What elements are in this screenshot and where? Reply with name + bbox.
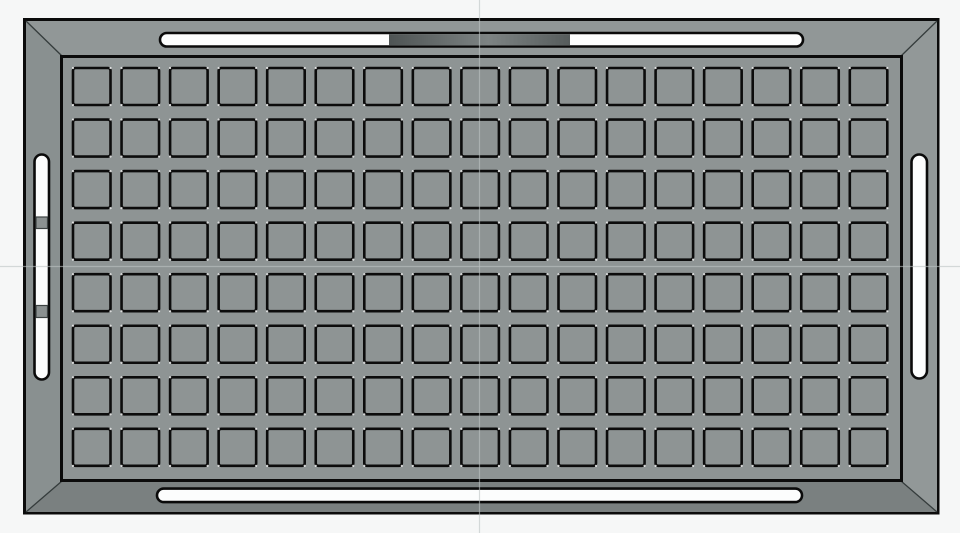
pocket-corner-highlight [838,170,840,172]
pocket-corner-highlight [692,104,694,106]
pocket-corner-highlight [692,67,694,69]
pocket-corner-highlight [120,170,122,172]
pocket-corner-highlight [120,259,122,261]
pocket-corner-highlight [595,222,597,224]
pocket-cell [73,171,111,208]
pocket-corner-highlight [546,376,548,378]
pocket-corner-highlight [72,259,74,261]
pocket-cell [73,223,111,260]
pocket-corner-highlight [412,67,414,69]
pocket-corner-highlight [109,465,111,467]
pocket-corner-highlight [546,118,548,120]
pocket-corner-highlight [218,413,220,415]
pocket-corner-highlight [509,104,511,106]
pocket-cell [753,274,791,311]
pocket-corner-highlight [72,207,74,209]
pocket-corner-highlight [655,428,657,430]
pocket-corner-highlight [363,67,365,69]
pocket-cell [850,223,888,260]
pocket-corner-highlight [789,118,791,120]
pocket-corner-highlight [207,428,209,430]
pocket-corner-highlight [266,104,268,106]
pocket-corner-highlight [886,67,888,69]
pocket-cell [122,68,160,105]
pocket-corner-highlight [498,310,500,312]
pocket-corner-highlight [352,170,354,172]
pocket-corner-highlight [498,118,500,120]
pocket-corner-highlight [546,428,548,430]
pocket-corner-highlight [218,325,220,327]
pocket-corner-highlight [218,310,220,312]
pocket-corner-highlight [849,155,851,157]
pocket-corner-highlight [546,362,548,364]
pocket-corner-highlight [218,465,220,467]
pocket-corner-highlight [120,310,122,312]
pocket-corner-highlight [72,310,74,312]
pocket-corner-highlight [158,362,160,364]
pocket-corner-highlight [741,170,743,172]
pocket-cell [607,274,645,311]
pocket-corner-highlight [643,376,645,378]
pocket-corner-highlight [692,325,694,327]
pocket-cell [801,171,839,208]
pocket-corner-highlight [546,155,548,157]
pocket-corner-highlight [412,273,414,275]
pocket-corner-highlight [255,207,257,209]
pocket-cell [73,274,111,311]
pocket-corner-highlight [752,325,754,327]
pocket-corner-highlight [849,465,851,467]
pocket-cell [656,326,694,363]
pocket-corner-highlight [800,155,802,157]
pocket-corner-highlight [595,273,597,275]
pocket-corner-highlight [169,273,171,275]
pocket-cell [510,377,548,414]
pocket-cell [656,68,694,105]
pocket-corner-highlight [789,273,791,275]
pocket-corner-highlight [169,259,171,261]
pocket-corner-highlight [255,222,257,224]
pocket-corner-highlight [255,428,257,430]
pocket-corner-highlight [498,465,500,467]
pocket-corner-highlight [606,170,608,172]
pocket-cell [219,377,257,414]
pocket-corner-highlight [304,273,306,275]
pocket-corner-highlight [741,155,743,157]
pocket-corner-highlight [255,376,257,378]
pocket-corner-highlight [304,104,306,106]
pocket-corner-highlight [315,67,317,69]
pocket-corner-highlight [752,104,754,106]
pocket-corner-highlight [800,259,802,261]
pocket-corner-highlight [109,310,111,312]
pocket-cell [559,68,597,105]
pocket-corner-highlight [789,170,791,172]
pocket-corner-highlight [218,170,220,172]
pocket-corner-highlight [838,259,840,261]
pocket-corner-highlight [546,325,548,327]
pocket-corner-highlight [800,465,802,467]
pocket-cell [219,120,257,157]
pocket-corner-highlight [207,207,209,209]
pocket-corner-highlight [109,207,111,209]
pocket-cell [704,377,742,414]
pocket-corner-highlight [207,67,209,69]
pocket-corner-highlight [255,155,257,157]
pocket-corner-highlight [643,104,645,106]
pocket-corner-highlight [109,155,111,157]
pocket-corner-highlight [800,273,802,275]
pocket-corner-highlight [352,273,354,275]
pocket-corner-highlight [72,428,74,430]
pocket-corner-highlight [509,207,511,209]
pocket-corner-highlight [557,310,559,312]
pocket-corner-highlight [72,222,74,224]
pocket-corner-highlight [789,376,791,378]
pocket-corner-highlight [169,465,171,467]
pocket-corner-highlight [304,259,306,261]
pocket-cell [413,223,451,260]
pocket-corner-highlight [120,67,122,69]
pocket-corner-highlight [655,325,657,327]
pocket-corner-highlight [169,170,171,172]
pocket-cell [461,377,499,414]
pocket-corner-highlight [352,259,354,261]
pocket-corner-highlight [849,170,851,172]
pocket-corner-highlight [509,273,511,275]
pocket-corner-highlight [449,376,451,378]
pocket-cell [753,223,791,260]
pocket-corner-highlight [460,465,462,467]
pocket-corner-highlight [207,155,209,157]
pocket-corner-highlight [363,325,365,327]
pocket-corner-highlight [401,67,403,69]
pocket-corner-highlight [460,222,462,224]
pocket-corner-highlight [752,310,754,312]
pocket-corner-highlight [266,273,268,275]
pocket-corner-highlight [109,273,111,275]
pocket-corner-highlight [352,325,354,327]
pocket-corner-highlight [266,67,268,69]
pocket-corner-highlight [703,413,705,415]
pocket-cell [316,120,354,157]
pocket-corner-highlight [449,273,451,275]
pocket-corner-highlight [886,104,888,106]
pocket-corner-highlight [595,428,597,430]
pocket-corner-highlight [741,428,743,430]
pocket-corner-highlight [158,465,160,467]
pocket-corner-highlight [692,222,694,224]
pocket-corner-highlight [498,67,500,69]
pocket-corner-highlight [304,170,306,172]
pocket-cell [607,171,645,208]
pocket-corner-highlight [606,325,608,327]
pocket-corner-highlight [304,155,306,157]
pocket-corner-highlight [595,465,597,467]
pocket-corner-highlight [606,362,608,364]
pocket-corner-highlight [412,428,414,430]
pocket-corner-highlight [401,207,403,209]
pocket-cell [510,223,548,260]
pocket-corner-highlight [449,118,451,120]
pocket-cell [656,377,694,414]
pocket-corner-highlight [886,118,888,120]
pocket-cell [170,274,208,311]
pocket-cell [656,274,694,311]
pocket-corner-highlight [412,376,414,378]
pocket-corner-highlight [655,465,657,467]
pocket-corner-highlight [703,104,705,106]
pocket-corner-highlight [412,259,414,261]
pocket-cell [510,429,548,466]
pocket-corner-highlight [352,413,354,415]
pocket-cell [753,377,791,414]
pocket-corner-highlight [741,465,743,467]
pocket-cell [316,223,354,260]
pocket-corner-highlight [120,362,122,364]
pocket-corner-highlight [703,170,705,172]
pocket-corner-highlight [886,428,888,430]
pocket-corner-highlight [849,325,851,327]
pocket-corner-highlight [546,207,548,209]
pocket-corner-highlight [606,310,608,312]
pocket-corner-highlight [703,428,705,430]
pocket-cell [656,120,694,157]
pocket-corner-highlight [606,207,608,209]
pocket-corner-highlight [460,428,462,430]
pocket-corner-highlight [109,428,111,430]
pocket-corner-highlight [800,362,802,364]
pocket-corner-highlight [412,104,414,106]
pocket-cell [850,68,888,105]
pocket-cell [559,377,597,414]
pocket-cell [73,429,111,466]
pocket-corner-highlight [557,67,559,69]
pocket-corner-highlight [158,155,160,157]
pocket-corner-highlight [109,325,111,327]
pocket-corner-highlight [703,273,705,275]
pocket-cell [510,326,548,363]
pocket-corner-highlight [752,207,754,209]
pocket-corner-highlight [849,222,851,224]
pocket-corner-highlight [557,273,559,275]
pocket-corner-highlight [266,362,268,364]
pocket-corner-highlight [752,155,754,157]
pocket-corner-highlight [255,310,257,312]
pocket-corner-highlight [643,428,645,430]
pocket-cell [364,429,402,466]
pocket-corner-highlight [498,104,500,106]
pocket-cell [267,429,305,466]
pocket-cell [219,326,257,363]
pocket-cell [704,120,742,157]
pocket-cell [267,171,305,208]
pocket-corner-highlight [655,155,657,157]
pocket-corner-highlight [158,428,160,430]
cad-viewport-svg [0,0,960,533]
pocket-corner-highlight [643,465,645,467]
pocket-cell [753,171,791,208]
pocket-corner-highlight [789,413,791,415]
pocket-cell [656,171,694,208]
pocket-corner-highlight [643,259,645,261]
pocket-corner-highlight [643,170,645,172]
pocket-corner-highlight [109,104,111,106]
pocket-corner-highlight [692,465,694,467]
pocket-cell [73,377,111,414]
pocket-corner-highlight [304,67,306,69]
pocket-corner-highlight [218,222,220,224]
pocket-corner-highlight [752,118,754,120]
pocket-corner-highlight [509,362,511,364]
pocket-corner-highlight [266,413,268,415]
pocket-cell [316,326,354,363]
pocket-corner-highlight [838,207,840,209]
pocket-corner-highlight [207,222,209,224]
pocket-corner-highlight [703,155,705,157]
pocket-cell [510,274,548,311]
pocket-corner-highlight [218,362,220,364]
pocket-corner-highlight [498,428,500,430]
pocket-corner-highlight [401,428,403,430]
pocket-corner-highlight [255,325,257,327]
pocket-corner-highlight [449,259,451,261]
pocket-corner-highlight [109,259,111,261]
pocket-corner-highlight [655,259,657,261]
pocket-corner-highlight [849,413,851,415]
pocket-corner-highlight [838,465,840,467]
pocket-cell [170,223,208,260]
pocket-corner-highlight [643,118,645,120]
pocket-corner-highlight [886,170,888,172]
pocket-corner-highlight [158,67,160,69]
pocket-corner-highlight [838,325,840,327]
pocket-corner-highlight [655,413,657,415]
pocket-corner-highlight [72,362,74,364]
pocket-corner-highlight [109,413,111,415]
pocket-cell [559,120,597,157]
pocket-corner-highlight [401,325,403,327]
pocket-corner-highlight [752,413,754,415]
pocket-corner-highlight [849,362,851,364]
pocket-corner-highlight [412,118,414,120]
pocket-corner-highlight [266,207,268,209]
pocket-corner-highlight [557,118,559,120]
pocket-corner-highlight [460,118,462,120]
pocket-corner-highlight [363,104,365,106]
pocket-corner-highlight [401,310,403,312]
pocket-cell [364,377,402,414]
pocket-corner-highlight [363,118,365,120]
pocket-corner-highlight [692,259,694,261]
pocket-corner-highlight [643,273,645,275]
pocket-corner-highlight [606,104,608,106]
pocket-corner-highlight [412,155,414,157]
pocket-corner-highlight [655,273,657,275]
pocket-corner-highlight [363,155,365,157]
pocket-cell [461,68,499,105]
pocket-corner-highlight [460,155,462,157]
pocket-corner-highlight [557,170,559,172]
pocket-corner-highlight [207,362,209,364]
pocket-corner-highlight [401,104,403,106]
pocket-cell [704,429,742,466]
pocket-corner-highlight [789,222,791,224]
pocket-corner-highlight [692,362,694,364]
pocket-corner-highlight [557,413,559,415]
pocket-corner-highlight [460,362,462,364]
pocket-corner-highlight [606,413,608,415]
pocket-corner-highlight [449,67,451,69]
pocket-corner-highlight [401,376,403,378]
pocket-corner-highlight [838,67,840,69]
pocket-corner-highlight [363,170,365,172]
pocket-cell [801,429,839,466]
pocket-corner-highlight [703,67,705,69]
pocket-corner-highlight [838,362,840,364]
pocket-corner-highlight [412,310,414,312]
pocket-corner-highlight [789,104,791,106]
pocket-corner-highlight [266,170,268,172]
pocket-corner-highlight [449,155,451,157]
pocket-corner-highlight [169,207,171,209]
pocket-corner-highlight [169,428,171,430]
slot-left-tab-1 [36,217,48,229]
pocket-cell [704,68,742,105]
pocket-corner-highlight [207,170,209,172]
pocket-cell [413,120,451,157]
pocket-cell [219,223,257,260]
pocket-corner-highlight [800,104,802,106]
pocket-corner-highlight [557,104,559,106]
pocket-cell [413,326,451,363]
pocket-corner-highlight [412,362,414,364]
pocket-cell [510,68,548,105]
pocket-corner-highlight [304,413,306,415]
pocket-corner-highlight [255,362,257,364]
pocket-corner-highlight [643,362,645,364]
pocket-corner-highlight [606,273,608,275]
pocket-corner-highlight [352,310,354,312]
pocket-corner-highlight [800,118,802,120]
pocket-cell [364,120,402,157]
pocket-corner-highlight [498,376,500,378]
pocket-corner-highlight [546,310,548,312]
pocket-corner-highlight [703,118,705,120]
pocket-corner-highlight [169,104,171,106]
pocket-corner-highlight [498,155,500,157]
pocket-corner-highlight [266,118,268,120]
pocket-cell [364,326,402,363]
pocket-corner-highlight [449,207,451,209]
pocket-corner-highlight [692,170,694,172]
pocket-corner-highlight [169,155,171,157]
pocket-cell [219,68,257,105]
pocket-cell [850,171,888,208]
pocket-corner-highlight [169,67,171,69]
pocket-corner-highlight [557,362,559,364]
pocket-corner-highlight [401,413,403,415]
pocket-corner-highlight [218,207,220,209]
pocket-corner-highlight [741,273,743,275]
pocket-corner-highlight [752,170,754,172]
pocket-corner-highlight [655,376,657,378]
pocket-corner-highlight [741,104,743,106]
pocket-corner-highlight [218,428,220,430]
pocket-cell [267,68,305,105]
pocket-corner-highlight [595,155,597,157]
pocket-cell [413,171,451,208]
